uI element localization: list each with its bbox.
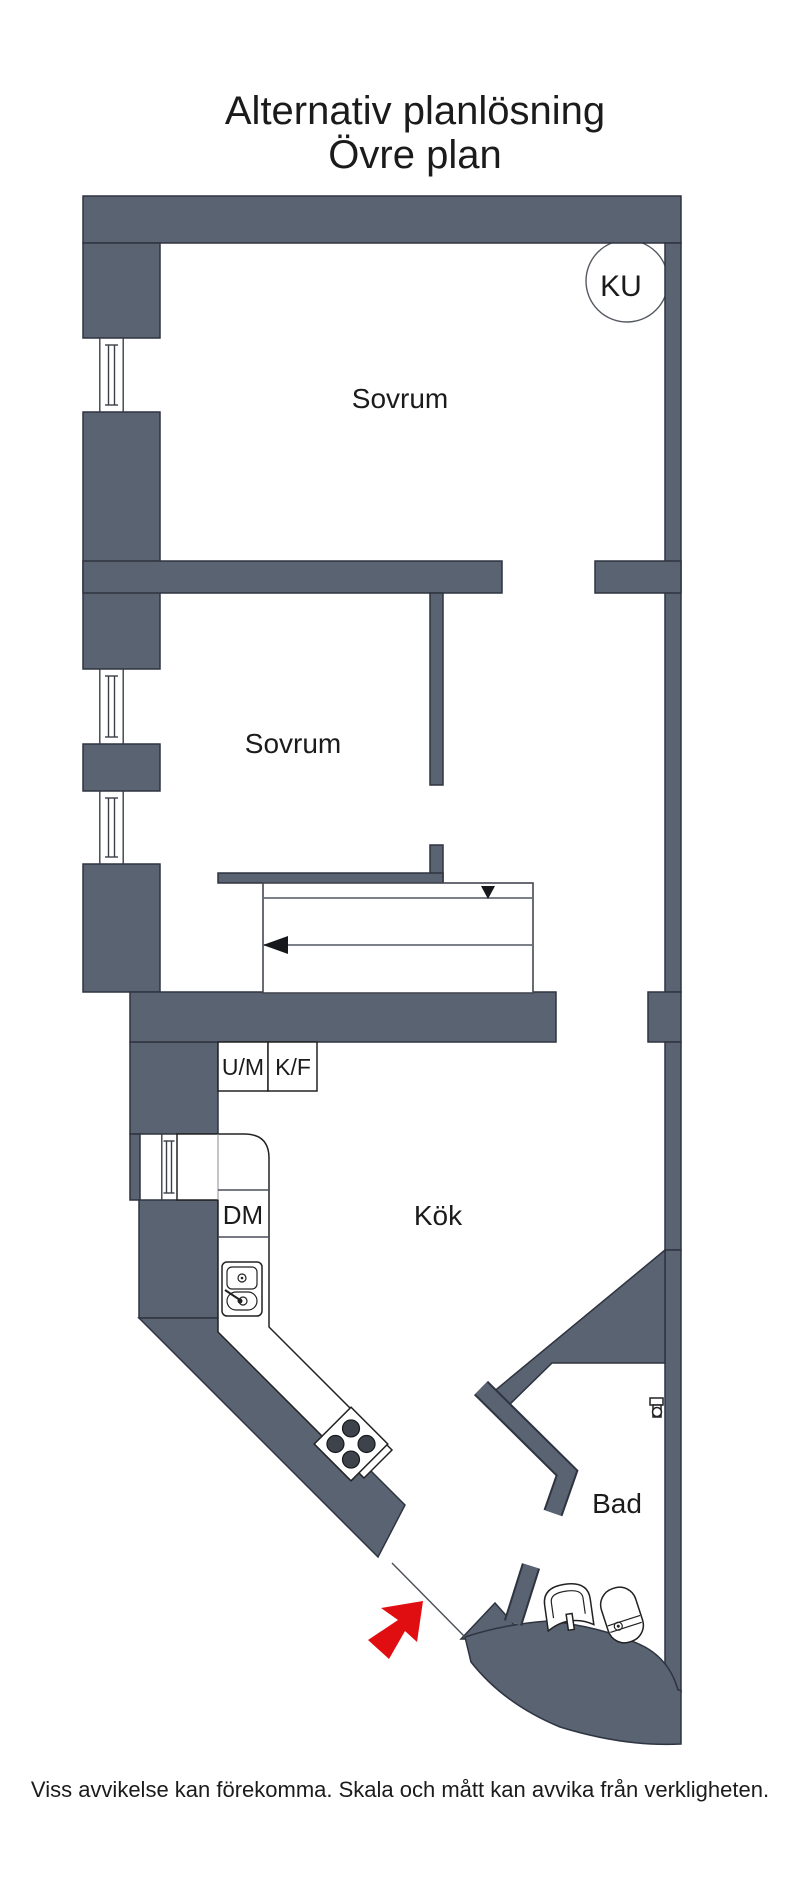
floor-plan-page: Alternativ planlösning Övre plan KU Sovr… [0, 0, 800, 1900]
wall-left-block-2 [83, 412, 160, 669]
wall-right-mid [665, 1042, 681, 1250]
wall-kitchen-bath-wedge [492, 1250, 665, 1407]
wall-bedroom-divider-left [83, 561, 502, 593]
paper-holder-icon [650, 1398, 663, 1417]
label-kf: K/F [275, 1054, 311, 1080]
wall-kitchen-top [130, 992, 556, 1042]
window-icon-bedroom2-lower [100, 791, 123, 864]
wall-bedroom-divider-right [595, 561, 681, 593]
wall-kitchen-window-edge [130, 1134, 140, 1200]
room-label-bedroom-lower: Sovrum [245, 728, 341, 759]
window-icon-bedroom2-upper [100, 669, 123, 744]
wall-bath-zigzag [481, 1388, 567, 1513]
label-ku: KU [600, 270, 642, 303]
washbasin-icon [542, 1581, 594, 1633]
wall-bath-jamb [513, 1566, 531, 1623]
room-label-bathroom: Bad [592, 1488, 642, 1519]
staircase [263, 883, 533, 993]
label-um: U/M [222, 1054, 264, 1080]
label-dm: DM [223, 1200, 263, 1230]
page-title-line1: Alternativ planlösning [225, 89, 605, 133]
staircase-box [263, 883, 533, 993]
wall-kitchen-left [130, 1042, 218, 1134]
wall-curved-south [465, 1621, 681, 1744]
page-title-line2: Övre plan [328, 133, 501, 177]
wall-left-block-4 [83, 864, 160, 992]
wall-right-bump [648, 992, 681, 1042]
wall-stub-upper [430, 593, 443, 785]
wall-kitchen-left-lower [139, 1200, 218, 1318]
window-icon-kitchen [162, 1134, 177, 1200]
wall-top [83, 196, 681, 243]
floor-plan-drawing: Alternativ planlösning Övre plan KU Sovr… [0, 0, 800, 1900]
entrance-arrow-icon [368, 1601, 423, 1659]
kitchen-sink-icon [222, 1262, 262, 1316]
window-icon-bedroom1 [100, 338, 123, 412]
disclaimer-text: Viss avvikelse kan förekomma. Skala och … [31, 1777, 769, 1802]
wall-right-upper [665, 243, 681, 992]
wall-stair-top [218, 873, 443, 883]
room-label-kitchen: Kök [414, 1200, 463, 1231]
wall-right-lower [665, 1250, 681, 1692]
wall-left-block-3 [83, 744, 160, 791]
wall-left-block-1 [83, 243, 160, 338]
room-label-bedroom-upper: Sovrum [352, 383, 448, 414]
